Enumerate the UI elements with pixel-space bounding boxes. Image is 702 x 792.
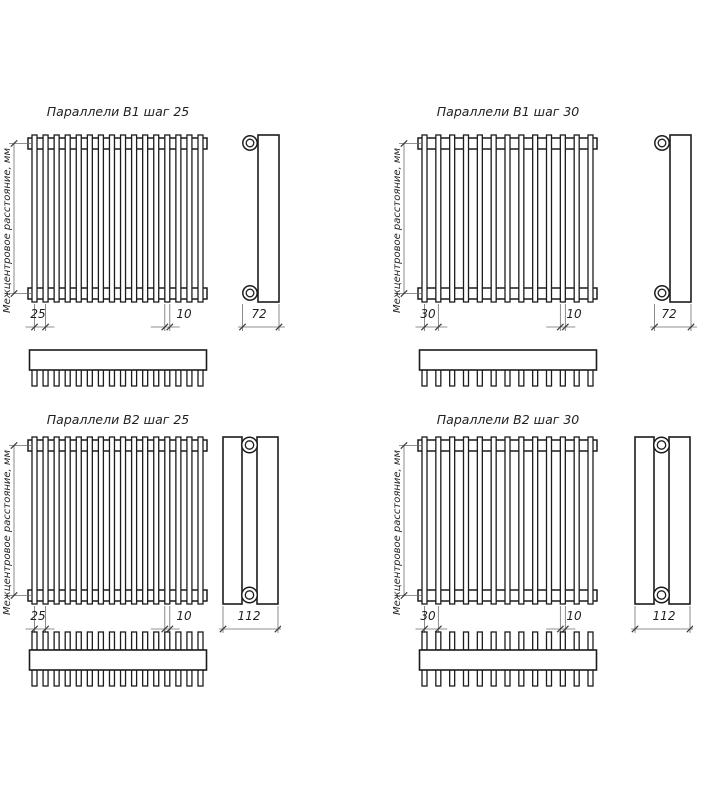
dimension-tube-width: 10 xyxy=(561,609,587,623)
dimension-pitch: 25 xyxy=(25,609,51,623)
radiator-top-view xyxy=(418,630,599,690)
technical-drawing-sheet: Параллели В1 шаг 25 Межцентровое расстоя… xyxy=(0,0,702,792)
dimension-depth: 112 xyxy=(642,609,686,623)
radiator-front-view xyxy=(396,430,608,636)
radiator-side-view xyxy=(631,430,693,636)
radiator-top-view xyxy=(28,630,209,690)
panel-title: Параллели В2 шаг 25 xyxy=(24,412,212,427)
radiator-front-view xyxy=(6,430,218,636)
radiator-side-view xyxy=(219,430,281,636)
panel-b2-step-25: Параллели В2 шаг 25 Межцентровое расстоя… xyxy=(0,302,351,698)
dimension-depth: 112 xyxy=(227,609,271,623)
panel-title: Параллели В2 шаг 30 xyxy=(414,412,602,427)
dimension-tube-width: 10 xyxy=(171,609,197,623)
panel-b2-step-30: Параллели В2 шаг 30 Межцентровое расстоя… xyxy=(390,302,702,698)
panel-title: Параллели В1 шаг 25 xyxy=(24,104,212,119)
dimension-pitch: 30 xyxy=(415,609,441,623)
panel-title: Параллели В1 шаг 30 xyxy=(414,104,602,119)
